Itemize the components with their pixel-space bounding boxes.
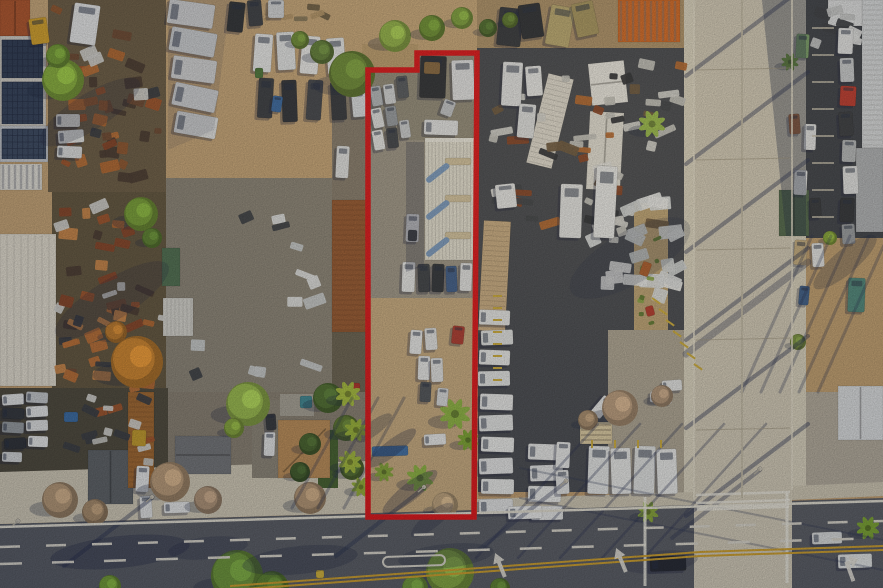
aerial-photo-svg [0, 0, 883, 588]
screenshot-root [0, 0, 883, 588]
film-grain-overlay [0, 0, 883, 588]
